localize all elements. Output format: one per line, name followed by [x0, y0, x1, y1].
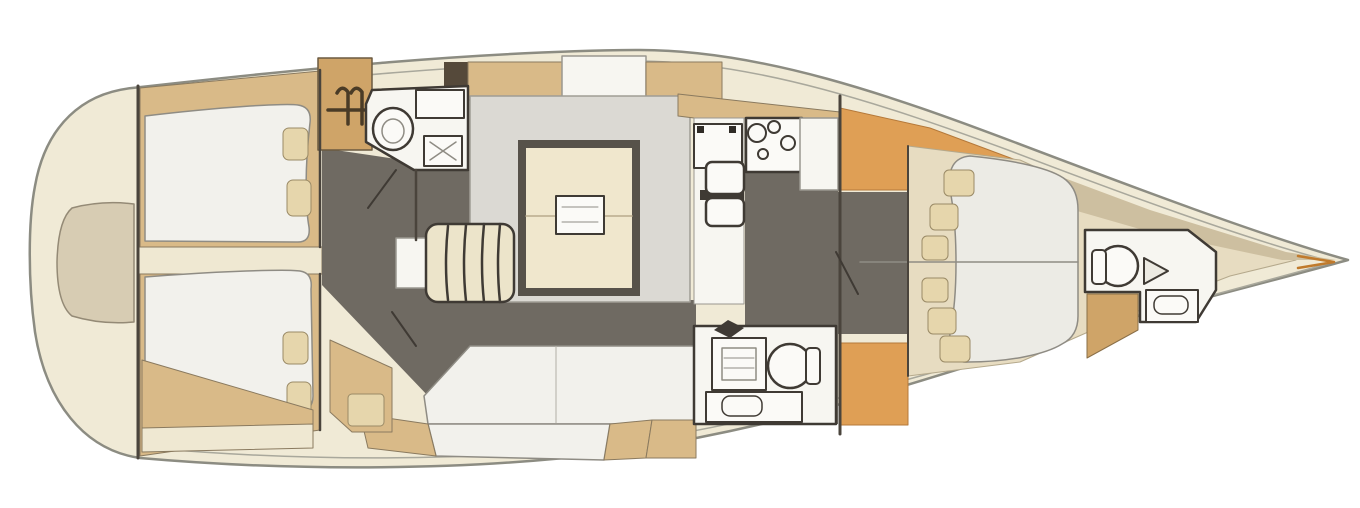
floor-center-band: [516, 300, 696, 350]
fwd-bed-pad-4: [922, 278, 948, 302]
aft-port-bed-pad-2: [287, 180, 311, 216]
aft-stbd-deck-strip: [142, 424, 313, 452]
fwd-orange-wardrobe: [840, 343, 908, 425]
fwd-bed-pad-1: [944, 170, 974, 196]
galley-right-counter: [800, 118, 838, 190]
galley-sink-dot-2: [729, 126, 736, 133]
fwd-bed-pad-6: [940, 336, 970, 362]
hanging-locker: [318, 58, 372, 150]
top-cabinet-port: [468, 62, 562, 100]
aft-stbd-bed-pad-1: [283, 332, 308, 364]
transom-locker: [57, 203, 134, 323]
stbd-bench: [428, 424, 610, 460]
galley-stove: [746, 118, 802, 172]
aft-port-bed-pad-1: [283, 128, 308, 160]
fwd-bed-pad-3: [922, 236, 948, 260]
fwd-heads-tan-block: [1087, 294, 1138, 358]
stbd-settee: [424, 346, 700, 424]
galley-fridge-2: [706, 198, 744, 226]
yacht-floorplan-svg: [0, 0, 1360, 508]
aft-port-bed: [145, 104, 310, 242]
stbd-bench-tan-right: [604, 420, 652, 460]
galley-fridge-1: [706, 162, 744, 194]
port-heads-window: [416, 90, 464, 118]
floorplan-canvas: [0, 0, 1360, 508]
salon-table-center-box: [556, 196, 604, 234]
companionway-stairs: [426, 224, 514, 302]
aft-heads-shower-tray: [712, 338, 766, 390]
stbd-desk-pad: [348, 394, 384, 426]
fwd-heads-toilet-tank: [1092, 250, 1106, 284]
fwd-bed-pad-5: [928, 308, 956, 334]
top-counter: [562, 56, 646, 100]
stairs-landing: [396, 238, 428, 288]
galley-sink-dot-1: [697, 126, 704, 133]
settee-tan-corner: [646, 420, 696, 458]
aft-heads-toilet-tank: [806, 348, 820, 384]
fwd-bed-pad-2: [930, 204, 958, 230]
